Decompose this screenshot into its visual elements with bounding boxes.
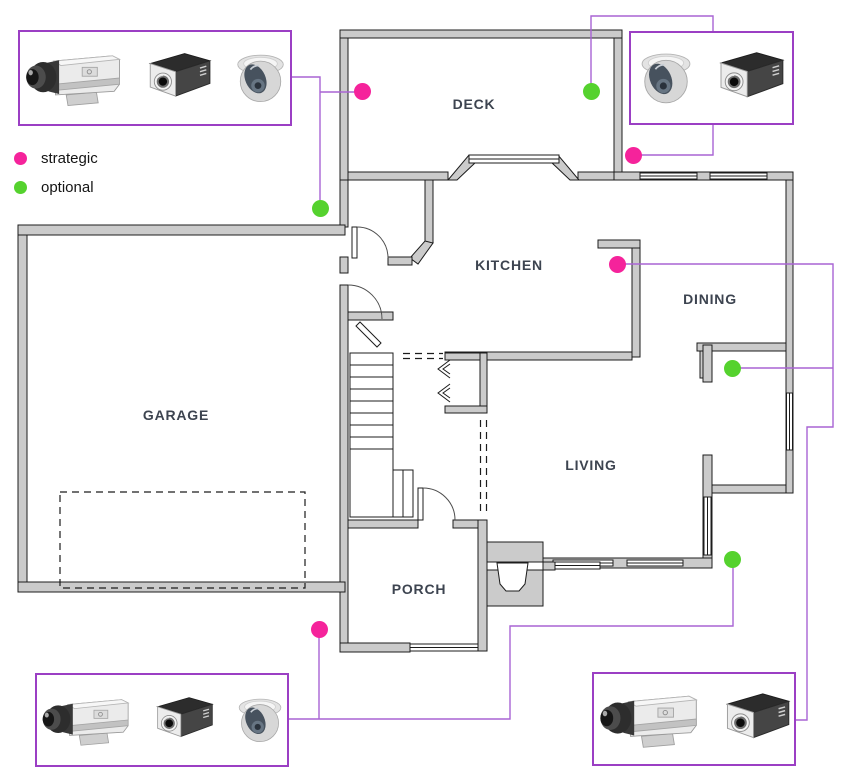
room-label-kitchen: KITCHEN (475, 257, 543, 273)
camera-dot-strategic-porch (311, 621, 328, 638)
camera-dot-strategic-deck-corner (625, 147, 642, 164)
camera-box-bottom-left (35, 673, 289, 767)
dome-camera-icon (231, 48, 290, 108)
camera-box-top-left (18, 30, 292, 126)
camera-dot-optional-garage-corner (312, 200, 329, 217)
camera-dot-optional-dining (724, 360, 741, 377)
room-label-living: LIVING (565, 457, 616, 473)
camera-dot-strategic-deck-left (354, 83, 371, 100)
box-camera-side-icon (20, 45, 127, 111)
box-camera-front-icon (720, 689, 794, 749)
box-camera-side-icon (594, 686, 704, 752)
legend-label-strategic: strategic (41, 150, 98, 167)
dome-camera-icon (635, 48, 697, 108)
box-camera-front-icon (713, 48, 789, 108)
camera-box-top-right (629, 31, 794, 125)
legend-dot-strategic (14, 152, 27, 165)
legend-item-strategic: strategic (14, 146, 98, 170)
room-label-garage: GARAGE (143, 407, 209, 423)
dome-camera-icon (233, 690, 287, 750)
legend-item-optional: optional (14, 175, 98, 199)
legend: strategicoptional (14, 146, 98, 204)
camera-box-bottom-right (592, 672, 796, 766)
camera-dot-strategic-kitchen (609, 256, 626, 273)
camera-dot-optional-deck-right (583, 83, 600, 100)
box-camera-front-icon (143, 48, 215, 108)
room-label-porch: PORCH (392, 581, 447, 597)
room-label-dining: DINING (683, 291, 737, 307)
box-camera-side-icon (37, 687, 135, 753)
legend-dot-optional (14, 181, 27, 194)
box-camera-front-icon (151, 690, 217, 750)
camera-dot-optional-living (724, 551, 741, 568)
security-camera-layout-diagram: strategicoptional DECKKITCHENDININGGARAG… (0, 0, 849, 783)
room-label-deck: DECK (453, 96, 496, 112)
legend-label-optional: optional (41, 179, 94, 196)
